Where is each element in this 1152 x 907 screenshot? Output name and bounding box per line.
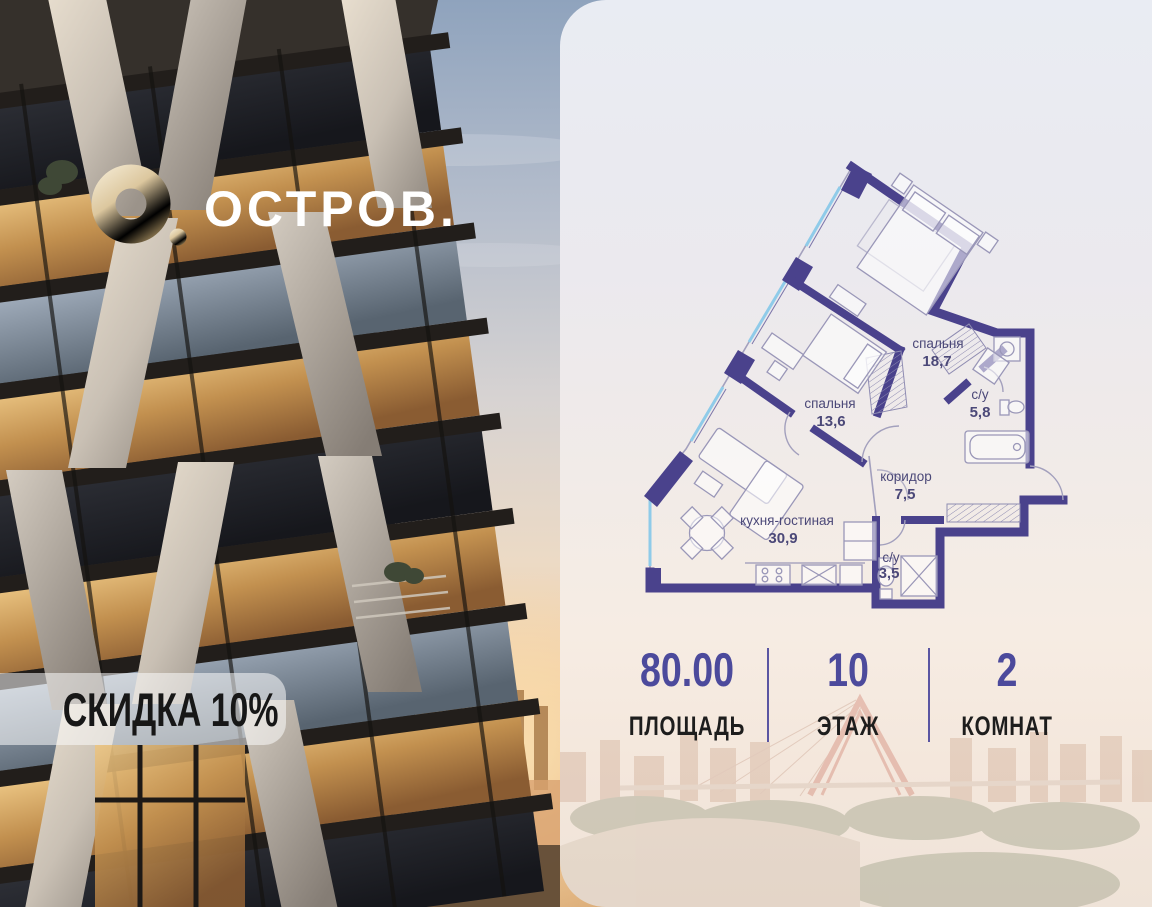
room-area-bath1: 5,8 [970,404,991,421]
room-area-bedroom2: 13,6 [816,413,845,430]
room-area-bedroom1: 18,7 [922,353,951,370]
brand-mark-icon [86,156,196,256]
discount-badge-text: СКИДКА 10% [63,682,286,737]
room-name-bath1: с/у [971,387,989,402]
brand-logo: ОСТРОВ. [86,156,196,256]
floor-plan: спальня 18,7 спальня 13,6 с/у 5,8 коридо… [560,0,1152,907]
brand-name: ОСТРОВ. [204,184,458,234]
room-area-bath2: 3,5 [879,565,900,582]
discount-badge: СКИДКА 10% [0,673,286,745]
room-name-bedroom1: спальня [912,336,963,351]
room-name-corridor: коридор [880,469,932,484]
promo-banner: ОСТРОВ. СКИДКА 10% [0,0,1152,907]
room-area-corridor: 7,5 [895,486,916,503]
room-name-bath2: с/у [882,550,900,565]
apartment-card[interactable]: спальня 18,7 спальня 13,6 с/у 5,8 коридо… [560,0,1152,907]
room-area-kitchen: 30,9 [768,530,797,547]
room-name-bedroom2: спальня [804,396,855,411]
room-name-kitchen: кухня-гостиная [740,513,834,528]
